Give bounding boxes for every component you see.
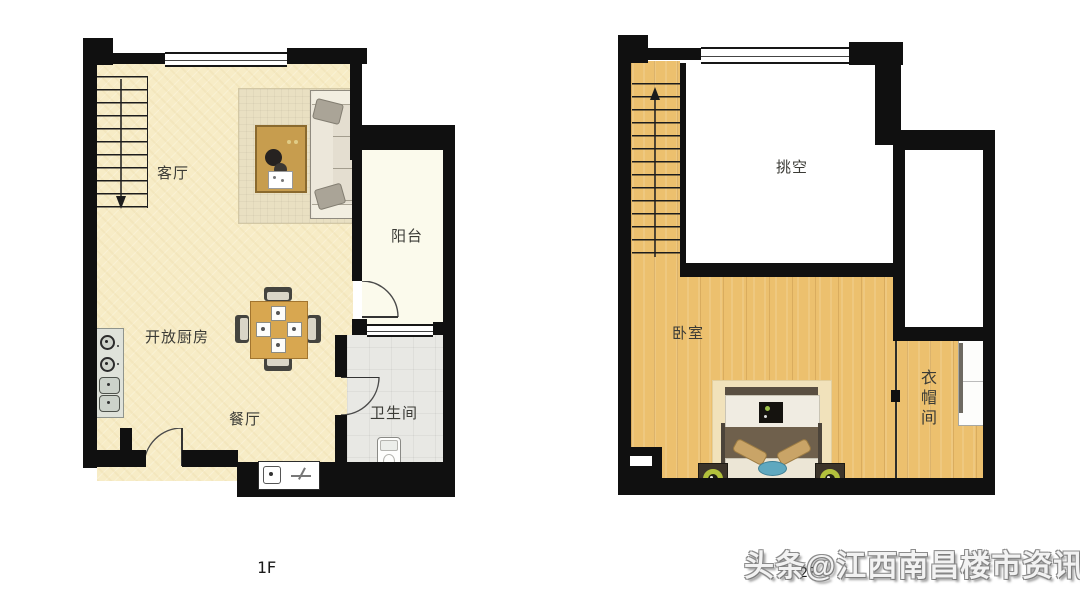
- wall: [680, 263, 895, 277]
- bathroom-label: 卫生间: [370, 402, 418, 423]
- bed: [725, 387, 818, 478]
- wall: [631, 48, 701, 60]
- dining-chair: [264, 357, 292, 371]
- wall: [618, 35, 631, 480]
- living-room-label: 客厅: [157, 162, 189, 183]
- cloakroom-label: 衣帽间: [914, 369, 938, 429]
- wall: [443, 150, 455, 330]
- stairs-down-arrow: [115, 79, 127, 211]
- wall: [352, 319, 367, 335]
- floor1-caption: 1F: [257, 558, 276, 577]
- wall: [618, 447, 662, 495]
- kitchen-sink-icon: [99, 377, 120, 394]
- tray: [268, 171, 293, 189]
- stove-burner-icon: [100, 357, 115, 372]
- wall: [893, 327, 995, 341]
- wall: [891, 390, 900, 402]
- dining-table: [250, 301, 308, 359]
- wall: [352, 150, 362, 281]
- wall-vent: [630, 456, 652, 466]
- floorplan-2f: 挑空 卧室 衣帽间: [618, 35, 995, 505]
- wall: [443, 330, 455, 480]
- balcony-window: [367, 324, 433, 337]
- watermark: 头条@江西南昌楼市资讯: [744, 541, 1080, 585]
- wall: [893, 130, 995, 150]
- decor-dot: [287, 140, 291, 144]
- bed-tv-icon: [759, 402, 783, 423]
- coffee-table: [255, 125, 307, 193]
- wall: [120, 428, 132, 452]
- vanity-sink: [258, 461, 320, 490]
- wall: [680, 63, 686, 263]
- bed-round-pillow: [758, 461, 787, 476]
- wall: [182, 450, 238, 467]
- cloakroom-divider: [895, 341, 897, 478]
- balcony-label: 阳台: [391, 225, 423, 246]
- decor-dot: [294, 140, 298, 144]
- stove-burner-icon: [100, 335, 115, 350]
- void-label: 挑空: [776, 156, 808, 177]
- bedroom-label: 卧室: [672, 322, 704, 343]
- living-room-window: [165, 52, 287, 67]
- wall: [97, 53, 165, 64]
- floor-upper-room: [905, 150, 983, 327]
- wall: [618, 478, 995, 495]
- open-kitchen-label: 开放厨房: [145, 326, 209, 347]
- dining-chair: [307, 315, 321, 343]
- wall: [350, 125, 455, 150]
- stairs-up-arrow: [649, 87, 661, 259]
- wall: [335, 335, 347, 377]
- wall: [83, 450, 146, 467]
- floorplan-1f: 客厅 阳台 开放厨房 餐厅 卫生间: [83, 35, 455, 497]
- dining-room-label: 餐厅: [229, 408, 261, 429]
- wardrobe: [958, 336, 986, 426]
- wall: [983, 130, 995, 495]
- kitchen-counter: [95, 328, 124, 418]
- wall: [287, 48, 367, 64]
- kitchen-sink-icon: [99, 395, 120, 412]
- wall: [893, 148, 905, 328]
- entry-door: [144, 428, 183, 467]
- wall: [83, 38, 97, 468]
- void-window: [701, 47, 849, 64]
- dining-chair: [235, 315, 249, 343]
- dining-chair: [264, 287, 292, 301]
- balcony-door: [362, 281, 400, 319]
